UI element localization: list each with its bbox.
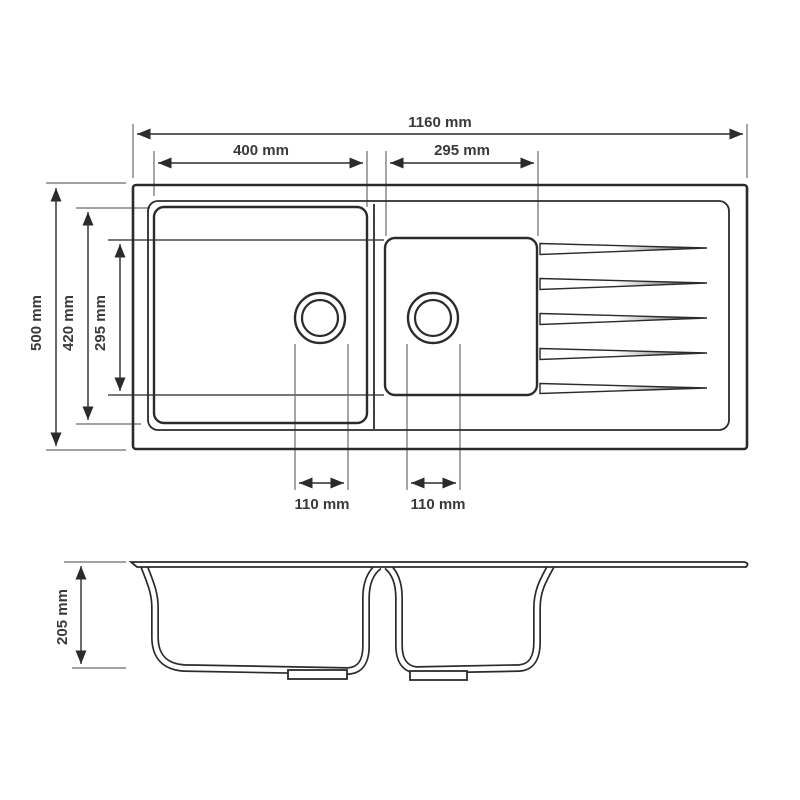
drawing-canvas: 1160 mm 400 mm 295 mm 500 mm 420 mm 295 … <box>0 0 800 800</box>
bowl-depth-label: 205 mm <box>54 589 71 645</box>
overall-depth-label: 500 mm <box>28 295 45 351</box>
sink-top-rim-section <box>131 562 748 567</box>
left-drain-fitting <box>288 670 347 679</box>
right-drain-offset-label: 110 mm <box>410 496 465 513</box>
right-drain-fitting <box>410 671 467 680</box>
sink-dimension-drawing: 1160 mm 400 mm 295 mm 500 mm 420 mm 295 … <box>0 0 800 800</box>
right-bowl-width-label: 295 mm <box>434 142 490 159</box>
left-bowl-width-label: 400 mm <box>233 142 289 159</box>
right-bowl-depth-label: 295 mm <box>92 295 109 351</box>
background <box>0 0 800 800</box>
left-drain-offset-label: 110 mm <box>294 496 349 513</box>
left-bowl-depth-label: 420 mm <box>60 295 77 351</box>
overall-width-label: 1160 mm <box>408 114 471 131</box>
